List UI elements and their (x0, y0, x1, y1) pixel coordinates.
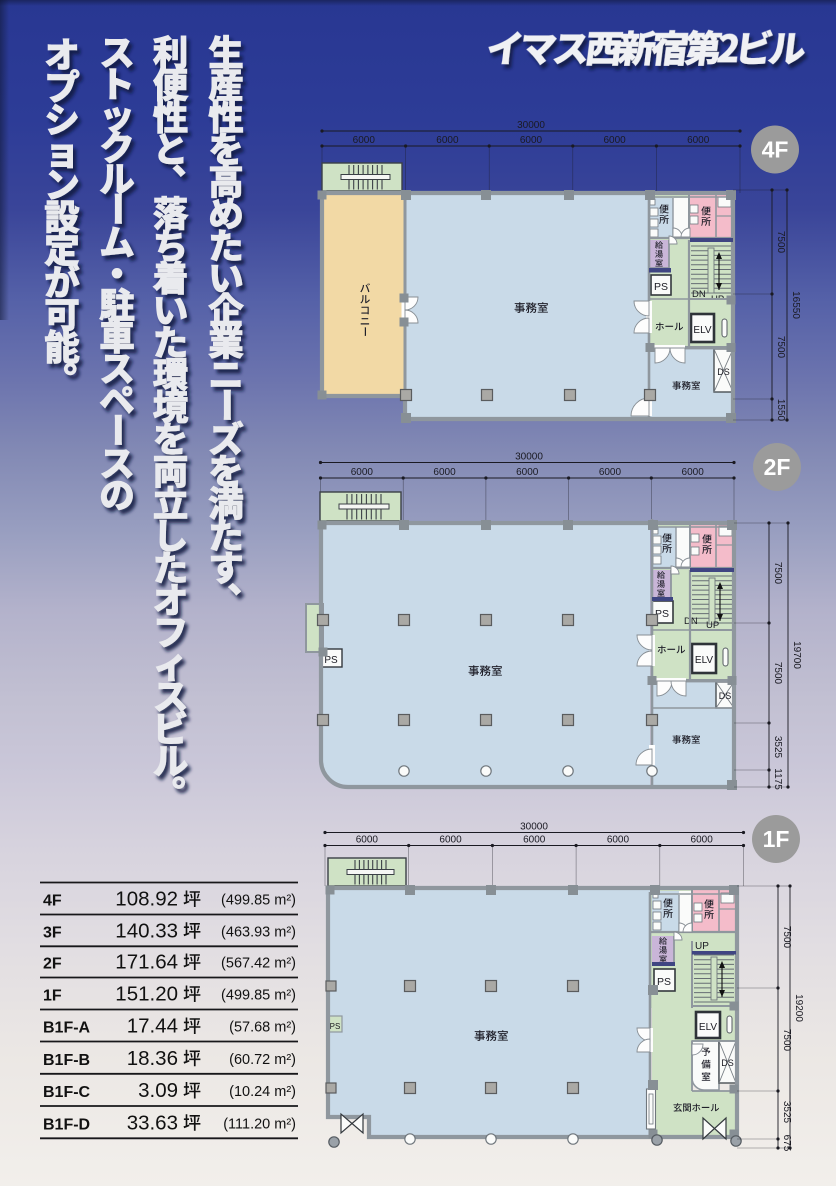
svg-text:1F: 1F (43, 988, 62, 1005)
svg-text:(60.72 m²): (60.72 m²) (229, 1052, 296, 1068)
svg-text:2F: 2F (43, 956, 62, 973)
svg-text:675: 675 (781, 1135, 792, 1152)
svg-text:DS: DS (721, 1058, 734, 1068)
svg-text:6000: 6000 (599, 467, 622, 478)
svg-text:6000: 6000 (516, 467, 539, 478)
svg-text:17.44: 17.44 (127, 1015, 178, 1038)
svg-text:7500: 7500 (772, 562, 783, 585)
svg-text:6000: 6000 (682, 467, 705, 478)
svg-text:4F: 4F (43, 893, 62, 910)
svg-text:DS: DS (719, 691, 732, 701)
svg-text:18.36: 18.36 (127, 1047, 178, 1070)
svg-text:16550: 16550 (790, 291, 801, 319)
svg-text:B1F-B: B1F-B (43, 1052, 90, 1069)
svg-text:B1F-A: B1F-A (43, 1020, 91, 1037)
svg-text:DS: DS (717, 367, 730, 377)
svg-text:6000: 6000 (351, 467, 374, 478)
svg-text:PS: PS (324, 655, 338, 666)
svg-text:33.63: 33.63 (127, 1111, 178, 1134)
svg-text:6000: 6000 (687, 135, 710, 146)
svg-text:6000: 6000 (353, 135, 376, 146)
svg-text:30000: 30000 (517, 120, 545, 131)
svg-text:108.92: 108.92 (115, 888, 178, 911)
svg-text:B1F-C: B1F-C (43, 1084, 91, 1101)
svg-text:6000: 6000 (439, 835, 462, 846)
svg-text:171.64: 171.64 (115, 951, 178, 974)
svg-text:6000: 6000 (691, 835, 714, 846)
svg-text:19700: 19700 (791, 641, 802, 669)
svg-text:1F: 1F (763, 826, 790, 852)
svg-text:7500: 7500 (775, 231, 786, 254)
svg-text:151.20: 151.20 (115, 983, 178, 1006)
svg-text:7500: 7500 (781, 1029, 792, 1052)
svg-text:UP: UP (695, 941, 709, 952)
svg-text:(499.85 m²): (499.85 m²) (221, 988, 296, 1004)
svg-text:7500: 7500 (781, 926, 792, 949)
svg-text:(499.85 m²): (499.85 m²) (221, 893, 296, 909)
svg-text:PS: PS (657, 976, 671, 988)
svg-text:140.33: 140.33 (115, 919, 178, 942)
svg-text:(463.93 m²): (463.93 m²) (221, 924, 296, 940)
svg-text:2F: 2F (764, 454, 791, 480)
svg-text:6000: 6000 (603, 135, 626, 146)
svg-text:PS: PS (330, 1022, 341, 1031)
svg-text:6000: 6000 (523, 835, 546, 846)
svg-text:7500: 7500 (772, 662, 783, 685)
svg-text:(10.24 m²): (10.24 m²) (229, 1084, 296, 1100)
svg-text:B1F-D: B1F-D (43, 1116, 90, 1133)
svg-text:6000: 6000 (607, 835, 630, 846)
svg-text:1175: 1175 (772, 768, 783, 790)
svg-text:1550: 1550 (775, 399, 786, 422)
svg-text:6000: 6000 (520, 135, 543, 146)
svg-text:ELV: ELV (693, 325, 711, 336)
svg-text:3.09: 3.09 (138, 1079, 178, 1102)
svg-text:3525: 3525 (781, 1101, 792, 1124)
svg-text:19200: 19200 (793, 994, 804, 1022)
svg-text:30000: 30000 (515, 452, 543, 463)
svg-text:(567.42 m²): (567.42 m²) (221, 956, 296, 972)
svg-text:ELV: ELV (695, 655, 713, 666)
svg-text:6000: 6000 (436, 135, 459, 146)
svg-text:6000: 6000 (356, 835, 379, 846)
svg-text:(111.20 m²): (111.20 m²) (223, 1116, 296, 1132)
svg-text:ELV: ELV (699, 1022, 717, 1033)
svg-text:30000: 30000 (520, 822, 548, 833)
svg-text:PS: PS (654, 281, 668, 293)
svg-text:3F: 3F (43, 924, 62, 941)
svg-text:4F: 4F (762, 137, 789, 163)
svg-text:6000: 6000 (433, 467, 456, 478)
svg-text:7500: 7500 (775, 336, 786, 359)
svg-text:3525: 3525 (772, 736, 783, 759)
svg-text:(57.68 m²): (57.68 m²) (229, 1020, 296, 1036)
